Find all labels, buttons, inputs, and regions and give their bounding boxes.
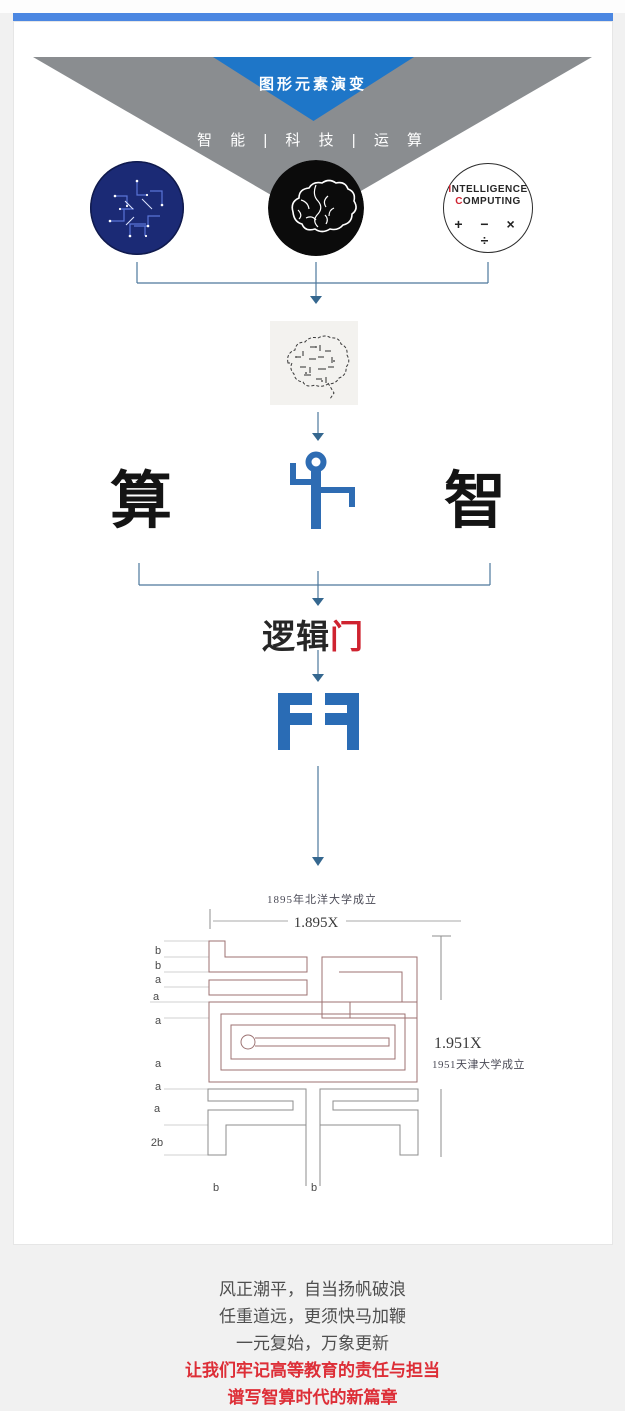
bracket-connector-middle: [132, 561, 496, 607]
measure-labels-left: b b a a a a a a 2b: [151, 945, 163, 1149]
banner-title: 图形元素演变: [13, 73, 613, 94]
footer-line: 一元复始，万象更新: [0, 1330, 625, 1357]
article-image: 图形元素演变 智 能 | 科 技 | 运 算: [0, 0, 625, 1400]
arrow-down-icon: [310, 410, 326, 442]
measure-label: b: [311, 1182, 317, 1194]
footer-highlight-line: 谱写智算时代的新篇章: [0, 1384, 625, 1411]
measure-label: b: [155, 960, 161, 972]
measure-label: b: [213, 1182, 219, 1194]
footer-line: 任重道远，更须快马加鞭: [0, 1303, 625, 1330]
computing-line2: COMPUTING: [444, 196, 532, 208]
intelligence-computing-circle: INTELLIGENCE COMPUTING + − × ÷: [443, 163, 533, 253]
measure-label: a: [155, 1058, 162, 1070]
concept-char-suan: 算: [95, 471, 187, 533]
top-strip: [0, 0, 625, 13]
caption-1895: 1895年北洋大学成立: [267, 892, 377, 906]
concept-char-zhi: 智: [429, 471, 521, 533]
measure-label: a: [155, 1081, 162, 1093]
circuit-brain-image: [270, 321, 358, 405]
footer-text-block: 风正潮平，自当扬帆破浪 任重道远，更须快马加鞭 一元复始，万象更新 让我们牢记高…: [0, 1276, 625, 1411]
measure-label: a: [153, 991, 160, 1003]
line1-rest: NTELLIGENCE: [452, 184, 528, 195]
brain-circle-image: [268, 160, 364, 256]
dimension-1895x: 1.895X: [294, 915, 339, 931]
arrow-down-icon: [312, 598, 324, 606]
dimension-1951x: 1.951X: [434, 1035, 482, 1052]
measure-labels-bottom: b b: [213, 1182, 317, 1194]
circuit-board-circle-image: [90, 161, 184, 255]
arrow-down-icon: [310, 296, 322, 304]
caption-1951: 1951天津大学成立: [432, 1057, 525, 1071]
triangle-subtitle: 智 能 | 科 技 | 运 算: [13, 129, 613, 150]
footer-line: 风正潮平，自当扬帆破浪: [0, 1276, 625, 1303]
top-accent-bar: [13, 13, 613, 21]
logic-gate-red-text: 门: [330, 618, 364, 655]
measure-label: a: [155, 974, 162, 986]
arrow-down-icon: [310, 764, 326, 868]
computing-line1: INTELLIGENCE: [444, 184, 532, 196]
blue-figure-mark: [283, 448, 361, 532]
math-operators: + − × ÷: [444, 216, 532, 248]
measure-label: a: [155, 1015, 162, 1027]
arrow-down-icon: [310, 648, 326, 684]
footer-highlight-line: 让我们牢记高等教育的责任与担当: [0, 1357, 625, 1384]
measure-label: a: [154, 1103, 161, 1115]
measure-label: 2b: [151, 1137, 163, 1149]
red-initial-c: C: [455, 196, 463, 207]
bracket-connector-top: [130, 258, 496, 306]
measure-label: b: [155, 945, 161, 957]
gate-logo-mark: [278, 693, 359, 750]
line2-rest: OMPUTING: [463, 196, 521, 207]
logo-construction-drawing: 1895年北洋大学成立 1.895X 1.951X 1951天津大学成立: [148, 882, 530, 1194]
